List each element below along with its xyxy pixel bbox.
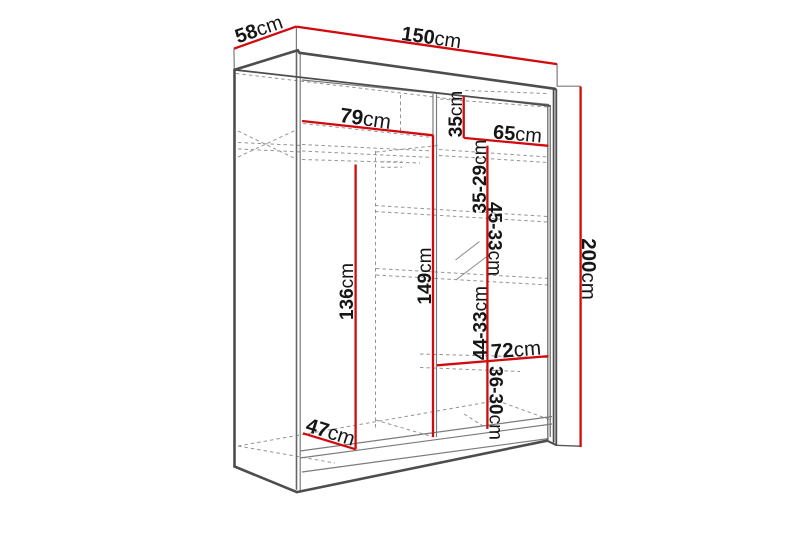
svg-text:200cm: 200cm [577,238,600,300]
svg-text:44-33cm: 44-33cm [470,286,491,360]
svg-text:45-33cm: 45-33cm [484,202,505,276]
svg-text:72cm: 72cm [490,337,542,364]
svg-text:65cm: 65cm [492,121,543,147]
svg-text:136cm: 136cm [337,263,358,320]
svg-text:36-30cm: 36-30cm [485,366,506,440]
svg-text:35cm: 35cm [446,91,467,137]
svg-text:149cm: 149cm [415,247,436,304]
